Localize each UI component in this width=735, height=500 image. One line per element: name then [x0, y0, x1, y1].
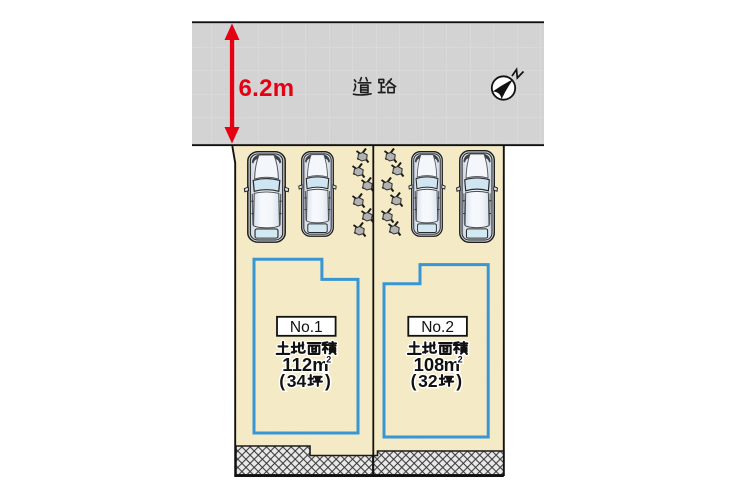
svg-text:(: (	[279, 371, 285, 391]
svg-text:2: 2	[458, 355, 463, 365]
svg-text:6.2m: 6.2m	[239, 75, 295, 102]
svg-text:(: (	[411, 371, 417, 391]
svg-text:2: 2	[326, 355, 331, 365]
svg-text:No.2: No.2	[421, 319, 454, 336]
svg-text:No.1: No.1	[290, 319, 323, 336]
svg-text:): )	[456, 371, 462, 391]
svg-text:32: 32	[418, 371, 438, 391]
svg-text:34: 34	[287, 371, 307, 391]
svg-text:): )	[325, 371, 331, 391]
